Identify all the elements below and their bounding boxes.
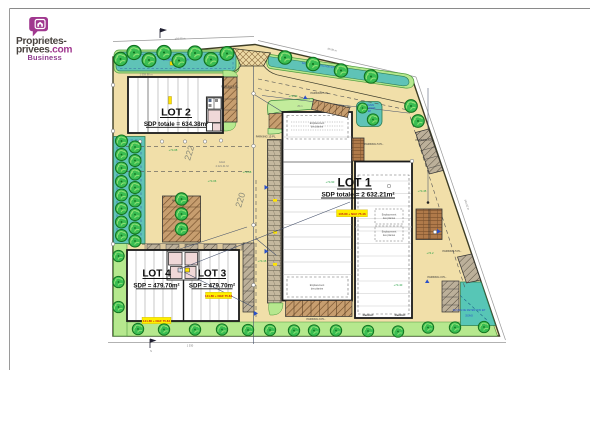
svg-text:PARKING 5 PL.: PARKING 5 PL.	[443, 249, 462, 253]
svg-text:SDP = 479.70m²: SDP = 479.70m²	[189, 282, 235, 289]
svg-text:+74.2: +74.2	[426, 251, 434, 255]
svg-text:+74.15: +74.15	[258, 259, 267, 263]
svg-text:1 530: 1 530	[187, 344, 194, 348]
svg-text:25 m: 25 m	[297, 105, 302, 108]
svg-text:+74.90: +74.90	[326, 180, 335, 184]
svg-text:+74.45: +74.45	[418, 189, 427, 193]
svg-text:LOT 2: LOT 2	[161, 107, 191, 119]
svg-text:103.98 m: 103.98 m	[174, 36, 185, 40]
svg-text:des plantes: des plantes	[383, 217, 396, 220]
svg-text:SDP = 479.70m²: SDP = 479.70m²	[133, 282, 179, 289]
svg-text:des plantes: des plantes	[311, 126, 324, 129]
svg-text:EP: EP	[368, 110, 372, 113]
svg-text:LOT 3: LOT 3	[198, 269, 227, 280]
svg-text:Business: Business	[28, 53, 62, 62]
svg-text:+74.40: +74.40	[394, 283, 403, 287]
svg-text:S: S	[150, 349, 152, 353]
svg-text:141.80 + NGF 75.84: 141.80 + NGF 75.84	[143, 319, 171, 323]
svg-text:PARKING 9 PL.: PARKING 9 PL.	[307, 317, 326, 321]
svg-text:4 221.41 M: 4 221.41 M	[216, 164, 229, 168]
svg-text:+74.06: +74.06	[208, 179, 217, 183]
svg-text:LOT 4: LOT 4	[142, 269, 171, 280]
svg-text:+74.30: +74.30	[289, 94, 298, 98]
svg-text:1 559.98 m: 1 559.98 m	[140, 73, 153, 77]
svg-text:PARKING 15 PL.: PARKING 15 PL.	[256, 135, 277, 139]
svg-text:135.80 + NGF 75.46: 135.80 + NGF 75.46	[338, 212, 366, 216]
svg-text:Renfort: Renfort	[395, 313, 406, 317]
svg-text:SDP totale = 2 632.21m²: SDP totale = 2 632.21m²	[321, 192, 395, 199]
svg-text:PARKING 4 PL.: PARKING 4 PL.	[221, 86, 239, 89]
svg-text:PARKING 5 PL.: PARKING 5 PL.	[311, 91, 330, 95]
svg-text:PARKING 5 PL.: PARKING 5 PL.	[416, 138, 435, 142]
svg-text:des plantes: des plantes	[311, 288, 324, 291]
svg-text:+74.08: +74.08	[169, 148, 178, 152]
svg-text:GAIA: GAIA	[219, 160, 225, 164]
svg-text:141.80 + NGF 75.84: 141.80 + NGF 75.84	[205, 294, 233, 298]
svg-text:LOT 1: LOT 1	[337, 176, 371, 190]
svg-text:+74.08: +74.08	[243, 170, 252, 174]
svg-text:des plantes: des plantes	[383, 234, 396, 237]
svg-text:Renfort: Renfort	[363, 313, 374, 317]
svg-text:SDP totale = 634.38m²: SDP totale = 634.38m²	[144, 121, 208, 128]
svg-text:PARKING 5 PL.: PARKING 5 PL.	[365, 142, 384, 146]
svg-text:BASSIN DE RETENTION EP: BASSIN DE RETENTION EP	[453, 309, 486, 312]
svg-text:PARKING 3 PL.: PARKING 3 PL.	[428, 275, 447, 279]
svg-text:350M3: 350M3	[465, 315, 473, 318]
